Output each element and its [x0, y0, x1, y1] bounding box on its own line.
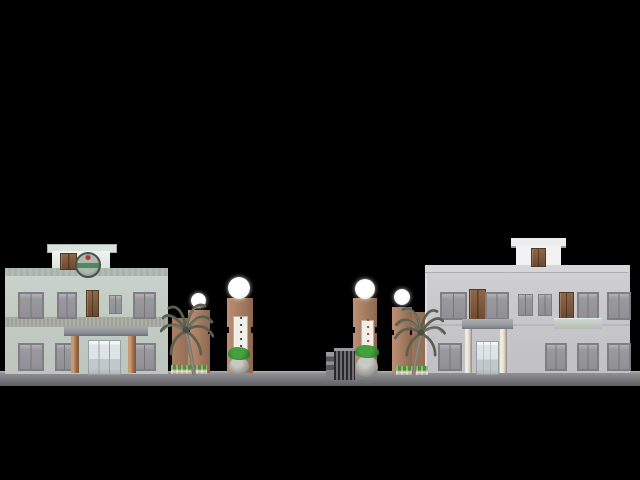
- pillar-notch-f: [375, 327, 377, 333]
- right-window-lower-4: [607, 343, 631, 371]
- render-canvas: ▪▪▪▪▪▪ ▪▪▪▪▪▪: [0, 0, 640, 480]
- plant-left: [228, 347, 250, 360]
- right-window-upper-4: [538, 294, 552, 316]
- left-window-lower-3: [133, 343, 156, 371]
- rooftop-emblem: [75, 252, 101, 278]
- left-portico-canopy: [64, 327, 148, 336]
- right-portico-column-b: [500, 329, 507, 373]
- pillar-notch-c: [227, 327, 229, 333]
- right-portico-canopy: [462, 319, 513, 329]
- palm-tree-left: [160, 297, 214, 375]
- right-balcony-slab: [554, 318, 602, 329]
- left-portico-column-a: [71, 336, 79, 373]
- gate-left-tall-lamp: [228, 277, 250, 299]
- right-building-roof-band: [425, 265, 628, 273]
- right-window-upper-5: [577, 292, 599, 320]
- left-portico-column-b: [128, 336, 136, 373]
- pot-center-right: [356, 355, 378, 377]
- left-door-upper: [86, 290, 99, 317]
- right-entrance-glass-door: [476, 341, 499, 375]
- gate-sliding-barrier: [334, 348, 355, 380]
- left-window-upper-3: [109, 295, 122, 314]
- left-window-upper-1: [18, 292, 44, 319]
- left-window-lower-1: [18, 343, 44, 371]
- right-window-upper-2: [485, 292, 509, 320]
- left-window-upper-4: [133, 292, 156, 319]
- gate-barrier-control-post: [326, 352, 334, 377]
- palm-tree-right: [394, 301, 446, 375]
- right-window-upper-3: [518, 294, 533, 316]
- left-entrance-glass-door: [88, 340, 121, 375]
- pillar-notch-e: [353, 327, 355, 333]
- right-window-lower-3: [577, 343, 599, 371]
- right-door-upper-1: [469, 289, 486, 322]
- plant-center-right: [355, 345, 379, 358]
- right-window-upper-6: [607, 292, 631, 320]
- right-portico-column-a: [465, 329, 472, 373]
- pillar-notch-d: [251, 327, 253, 333]
- left-window-upper-2: [57, 292, 77, 319]
- gate-right-tall-lamp: [355, 279, 375, 299]
- right-door-upper-2: [559, 292, 574, 320]
- right-window-lower-2: [545, 343, 567, 371]
- right-penthouse-door: [531, 248, 546, 267]
